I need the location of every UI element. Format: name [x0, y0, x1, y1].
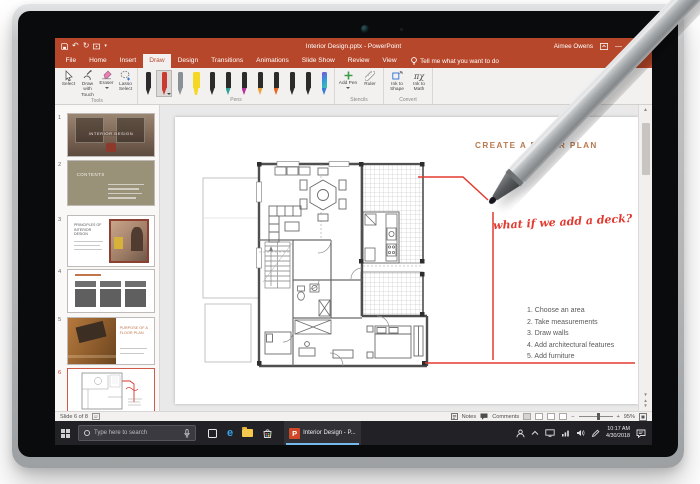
pen-button[interactable]: [156, 70, 172, 97]
list-item: 2. Take measurements: [527, 317, 614, 329]
pen-dropdown-icon[interactable]: [167, 93, 171, 95]
microsoft-store-icon[interactable]: [262, 428, 273, 439]
powerpoint-taskbar-button[interactable]: P Interior Design - P...: [284, 421, 361, 445]
scroll-up-icon[interactable]: ▲: [639, 107, 652, 113]
network-icon[interactable]: [561, 429, 570, 437]
add-pen-button[interactable]: Add Pen: [337, 69, 359, 89]
group-tools: Select Draw with Touch Eraser Lasso Sele…: [57, 68, 138, 104]
slide-thumbnail-4[interactable]: [67, 269, 155, 313]
clock-date: 4/30/2018: [606, 433, 630, 440]
slide-thumbnail-2[interactable]: CONTENTS: [67, 160, 155, 206]
pen-button[interactable]: [140, 70, 156, 97]
scroll-thumb[interactable]: [642, 123, 650, 175]
notes-button[interactable]: Notes: [462, 414, 477, 420]
tell-me-label: Tell me what you want to do: [420, 58, 499, 65]
screen: ↶ ↻ ▾ Interior Design.pptx - PowerPoint …: [55, 38, 652, 445]
draw-with-touch-button[interactable]: Draw with Touch: [78, 69, 97, 98]
pen-icon: [320, 72, 329, 96]
workspace: 1 2 3 4 5 6 INTERIOR DESIGN CONTENTS PRI…: [55, 105, 652, 411]
file-explorer-icon[interactable]: [242, 429, 253, 437]
thumb-number: 4: [58, 269, 61, 275]
pen-icon: [208, 72, 217, 96]
signed-in-user[interactable]: Aimee Owens: [554, 43, 593, 50]
ribbon-tab[interactable]: Draw: [143, 54, 171, 68]
status-bar: Slide 6 of 8 Notes Comments − + 95%: [55, 411, 652, 421]
pen-button[interactable]: [204, 70, 220, 97]
slide-thumbnail-panel: 1 2 3 4 5 6 INTERIOR DESIGN CONTENTS PRI…: [55, 105, 160, 411]
add-pen-icon: [344, 71, 353, 80]
comments-button[interactable]: Comments: [492, 414, 519, 420]
lasso-select-button[interactable]: Lasso Select: [116, 69, 135, 93]
slideshow-view-button[interactable]: [559, 413, 567, 420]
pen-icon: [240, 72, 249, 96]
lasso-icon: [120, 70, 131, 81]
pen-icon: [256, 72, 265, 96]
pen-icon: [272, 72, 281, 96]
group-pens: Pens: [138, 68, 335, 104]
zoom-slider-thumb[interactable]: [597, 413, 600, 420]
ribbon-tab[interactable]: File: [59, 54, 83, 68]
ink-to-math-icon: πχ: [413, 71, 425, 81]
task-view-icon[interactable]: [207, 428, 218, 439]
tell-me-box[interactable]: Tell me what you want to do: [403, 54, 499, 68]
start-button[interactable]: [61, 429, 70, 438]
action-center-icon[interactable]: [636, 429, 646, 438]
ink-to-math-button[interactable]: πχ Ink to Math: [408, 69, 430, 92]
pen-gallery: [140, 69, 332, 97]
qat-customize-icon[interactable]: ▾: [104, 44, 107, 49]
display-icon[interactable]: [545, 429, 555, 437]
ribbon-tab[interactable]: Transitions: [205, 54, 250, 68]
notes-icon[interactable]: [451, 413, 458, 420]
microphone-icon[interactable]: [184, 429, 190, 438]
current-slide[interactable]: CREATE A FLOOR PLAN what if we add a dec…: [175, 117, 638, 404]
pen-button[interactable]: [220, 70, 236, 97]
ribbon-display-options-icon[interactable]: [600, 43, 608, 50]
slide-editor-area: CREATE A FLOOR PLAN what if we add a dec…: [160, 105, 638, 411]
svg-text:πχ: πχ: [413, 72, 425, 81]
eraser-dropdown-icon[interactable]: [105, 87, 109, 89]
search-box[interactable]: Type here to search: [78, 425, 196, 441]
redo-icon[interactable]: ↻: [83, 42, 90, 50]
pen-icon: [224, 72, 233, 96]
list-item: 4. Add architectural features: [527, 340, 614, 352]
ribbon-tab[interactable]: Home: [83, 54, 114, 68]
pen-button[interactable]: [268, 70, 284, 97]
vertical-scrollbar[interactable]: ▲ ▼▲▼: [638, 105, 652, 411]
ribbon-tab[interactable]: Slide Show: [295, 54, 341, 68]
normal-view-button[interactable]: [523, 413, 531, 420]
ribbon-tab[interactable]: Review: [341, 54, 376, 68]
save-icon[interactable]: [61, 43, 68, 50]
minimize-button[interactable]: —: [615, 43, 622, 50]
slide-thumbnail-6[interactable]: [67, 368, 155, 411]
pen-button[interactable]: [316, 70, 332, 97]
zoom-in-button[interactable]: +: [617, 414, 620, 420]
slide-thumbnail-5[interactable]: PURPOSE OF A FLOOR PLAN: [67, 317, 155, 365]
cortana-icon: [84, 430, 90, 436]
list-item: 5. Add furniture: [527, 351, 614, 363]
pen-settings-icon[interactable]: [591, 429, 600, 438]
pen-icon: [304, 72, 313, 96]
thumb-number: 3: [58, 217, 61, 223]
ink-to-shape-icon: [392, 71, 403, 81]
ambient-sensor: [400, 28, 403, 31]
show-hidden-icons-chevron[interactable]: [531, 430, 539, 436]
comments-icon[interactable]: [480, 413, 488, 420]
mini-floor-plan: [68, 369, 154, 411]
pen-button[interactable]: [172, 70, 188, 97]
steps-list[interactable]: 1. Choose an area2. Take measurements3. …: [527, 305, 614, 363]
eraser-button[interactable]: Eraser: [97, 69, 116, 89]
windows-taskbar: Type here to search e P Interior Design …: [55, 421, 652, 445]
ruler-icon: [365, 71, 375, 81]
quick-access-toolbar: ↶ ↻ ▾: [55, 42, 107, 50]
slide-thumbnail-1[interactable]: INTERIOR DESIGN: [67, 113, 155, 157]
pen-button[interactable]: [188, 70, 204, 97]
reading-view-button[interactable]: [547, 413, 555, 420]
zoom-out-button[interactable]: −: [571, 414, 574, 420]
powerpoint-task-label: Interior Design - P...: [303, 430, 356, 436]
fit-slide-icon[interactable]: [639, 413, 647, 421]
titlebar: ↶ ↻ ▾ Interior Design.pptx - PowerPoint …: [55, 38, 652, 54]
floor-plan-drawing: [181, 120, 473, 400]
pen-button[interactable]: [284, 70, 300, 97]
handwritten-annotation[interactable]: what if we add a deck?: [493, 211, 652, 232]
search-placeholder: Type here to search: [94, 430, 147, 436]
start-slideshow-icon[interactable]: [93, 43, 100, 50]
zoom-slider[interactable]: [579, 416, 613, 417]
ribbon-tab[interactable]: Insert: [113, 54, 143, 68]
ribbon-tab[interactable]: Animations: [250, 54, 296, 68]
slide-indicator: Slide 6 of 8: [60, 414, 88, 420]
ribbon-draw-tab: Select Draw with Touch Eraser Lasso Sele…: [55, 68, 652, 105]
slide-thumbnail-3[interactable]: PRINCIPLES OF INTERIOR DESIGN: [67, 215, 155, 267]
thumb-number: 1: [58, 115, 61, 121]
people-icon[interactable]: [516, 429, 525, 438]
group-stencils: Add Pen Ruler Stencils: [335, 68, 384, 104]
add-pen-dropdown-icon[interactable]: [346, 87, 350, 89]
slide-nav-buttons[interactable]: ▼▲▼: [639, 392, 652, 409]
group-label-convert: Convert: [386, 97, 430, 104]
group-label-pens: Pens: [140, 97, 332, 104]
clock-time: 10:17 AM: [606, 426, 630, 433]
ribbon-tab[interactable]: View: [376, 54, 403, 68]
thumb-number: 5: [58, 317, 61, 323]
pen-button[interactable]: [300, 70, 316, 97]
select-tool-button[interactable]: Select: [59, 69, 78, 87]
group-convert: Ink to Shape πχ Ink to Math Convert: [384, 68, 433, 104]
pen-icon: [176, 72, 185, 96]
list-item: 1. Choose an area: [527, 305, 614, 317]
slide-title[interactable]: CREATE A FLOOR PLAN: [475, 141, 625, 150]
pen-button[interactable]: [236, 70, 252, 97]
pen-icon: [192, 72, 201, 96]
eraser-icon: [101, 70, 112, 80]
ruler-button[interactable]: Ruler: [359, 69, 381, 87]
powerpoint-icon: P: [289, 428, 300, 439]
thumb-number: 6: [58, 370, 61, 376]
cursor-icon: [64, 70, 74, 81]
pen-icon: [144, 72, 153, 96]
ribbon-tab-row: FileHomeInsertDrawDesignTransitionsAnima…: [55, 54, 652, 68]
taskbar-clock[interactable]: 10:17 AM 4/30/2018: [606, 426, 630, 440]
ribbon-tabs: FileHomeInsertDrawDesignTransitionsAnima…: [59, 54, 403, 68]
group-label-stencils: Stencils: [337, 97, 381, 104]
list-item: 3. Draw walls: [527, 328, 614, 340]
front-camera: [361, 25, 369, 33]
ink-to-shape-button[interactable]: Ink to Shape: [386, 69, 408, 92]
pen-button[interactable]: [252, 70, 268, 97]
draw-touch-icon: [82, 70, 93, 81]
undo-icon[interactable]: ↶: [72, 42, 79, 50]
pen-icon: [288, 72, 297, 96]
zoom-level[interactable]: 95%: [624, 414, 635, 420]
volume-icon[interactable]: [576, 429, 585, 437]
slide-sorter-view-button[interactable]: [535, 413, 543, 420]
thumb-number: 2: [58, 162, 61, 168]
lightbulb-icon: [411, 57, 417, 65]
ribbon-tab[interactable]: Design: [171, 54, 205, 68]
edge-browser-icon[interactable]: e: [227, 428, 233, 439]
display-settings-icon[interactable]: [92, 413, 100, 420]
